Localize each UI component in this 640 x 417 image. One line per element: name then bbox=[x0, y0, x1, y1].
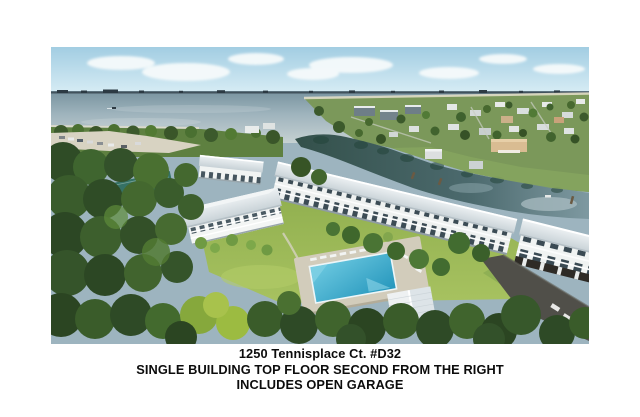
aerial-photo-canvas bbox=[51, 47, 589, 344]
aerial-photo bbox=[51, 47, 589, 344]
sky bbox=[51, 47, 589, 94]
condo-building-upper-left bbox=[198, 155, 264, 185]
left-forest bbox=[51, 142, 204, 296]
photo-caption: 1250 Tennisplace Ct. #D32 SINGLE BUILDIN… bbox=[0, 346, 640, 393]
caption-address: 1250 Tennisplace Ct. #D32 bbox=[0, 346, 640, 362]
caption-building-note: SINGLE BUILDING TOP FLOOR SECOND FROM TH… bbox=[0, 362, 640, 378]
caption-garage-note: INCLUDES OPEN GARAGE bbox=[0, 377, 640, 393]
tan-mansion bbox=[491, 139, 527, 153]
listing-card: 1250 Tennisplace Ct. #D32 SINGLE BUILDIN… bbox=[0, 0, 640, 417]
